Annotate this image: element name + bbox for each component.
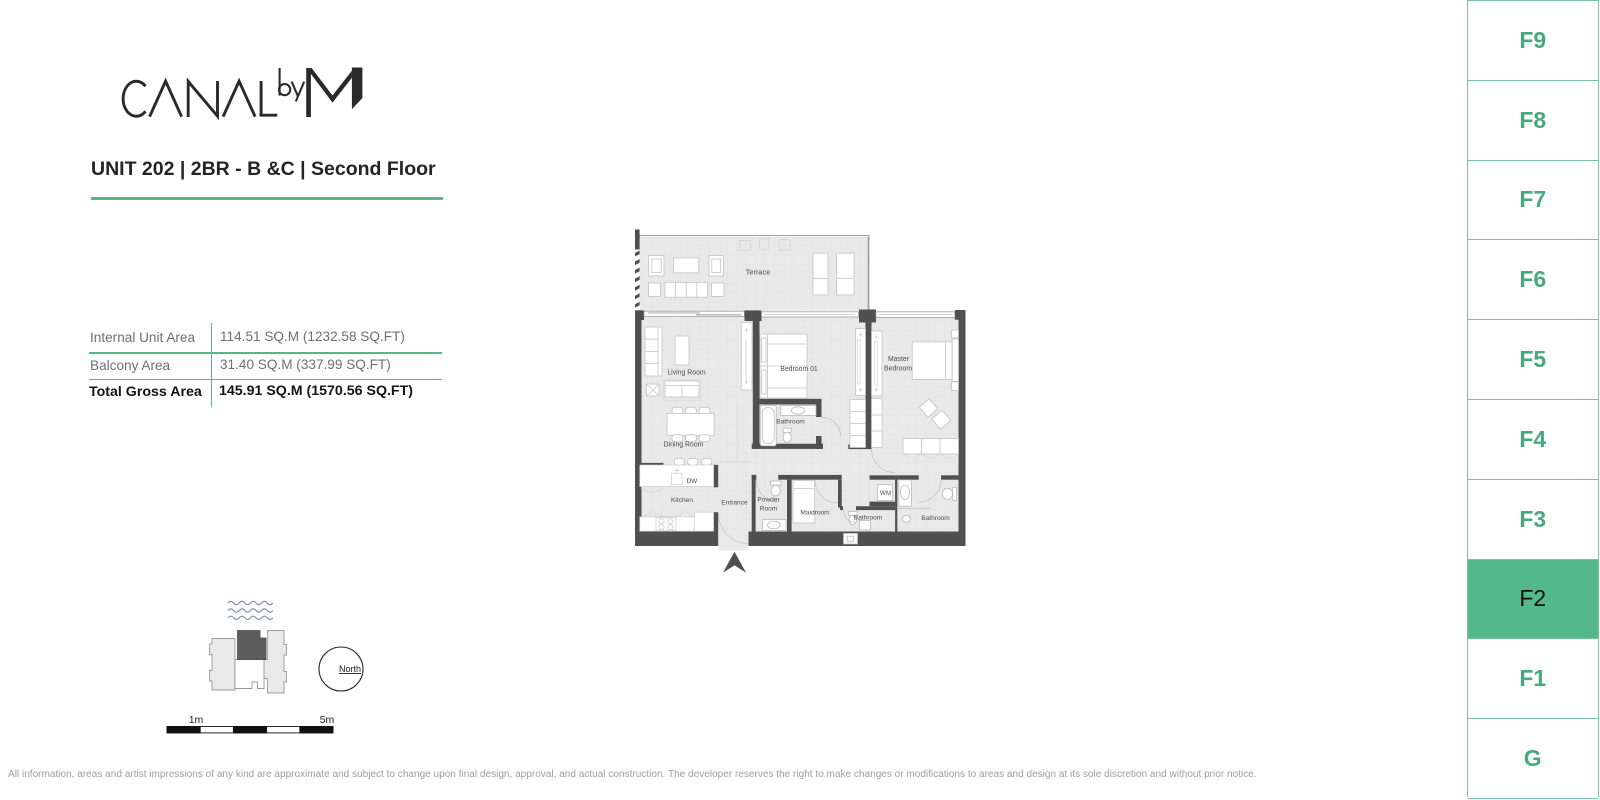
svg-text:DW: DW [686,478,698,485]
svg-text:WM: WM [880,490,891,497]
svg-text:Kitchen: Kitchen [671,497,693,504]
svg-text:North: North [339,664,361,674]
svg-text:Maidroom: Maidroom [800,510,830,517]
svg-text:Bedroom 01: Bedroom 01 [780,366,818,373]
svg-text:5m: 5m [320,714,335,726]
svg-text:Living Room: Living Room [667,370,706,377]
svg-text:Powder: Powder [757,497,780,504]
svg-text:Bathroom: Bathroom [921,515,950,522]
svg-text:Entrance: Entrance [721,500,748,507]
svg-text:Bathroom: Bathroom [776,419,805,426]
svg-text:Bedroom: Bedroom [884,366,912,373]
svg-text:1m: 1m [189,714,204,726]
svg-text:Bathroom: Bathroom [854,515,883,522]
svg-text:Master: Master [888,356,910,363]
svg-text:Room: Room [760,506,778,513]
svg-text:Dining Room: Dining Room [664,442,704,449]
svg-text:Terrace: Terrace [746,268,771,277]
